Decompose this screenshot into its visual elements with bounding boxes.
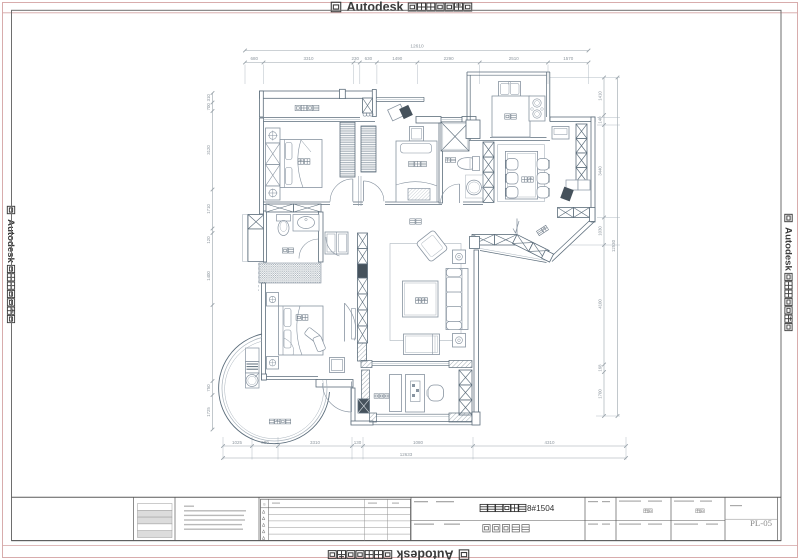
svg-text:4100: 4100 [598,299,603,309]
svg-text:12610: 12610 [410,44,424,50]
svg-text:1710: 1710 [206,204,211,214]
svg-text:3120: 3120 [206,145,211,155]
svg-text:2510: 2510 [509,56,520,61]
svg-text:140: 140 [598,116,603,124]
svg-text:700: 700 [206,103,211,111]
svg-text:130: 130 [354,440,362,445]
svg-text:Autodesk: Autodesk [347,0,404,14]
svg-text:168: 168 [598,364,603,372]
svg-text:12530: 12530 [611,239,616,252]
svg-text:750: 750 [206,384,211,392]
svg-text:4310: 4310 [544,440,555,445]
svg-text:3310: 3310 [303,56,314,61]
svg-text:Autodesk: Autodesk [5,219,16,263]
svg-text:8#1504: 8#1504 [527,504,555,513]
svg-text:680: 680 [250,56,258,61]
svg-text:PL-05: PL-05 [750,518,773,528]
svg-text:3440: 3440 [598,166,603,176]
svg-text:Autodesk: Autodesk [396,548,453,560]
svg-text:12633: 12633 [400,452,413,457]
svg-text:1700: 1700 [598,389,603,399]
svg-text:1025: 1025 [232,440,243,445]
svg-text:1080: 1080 [413,440,424,445]
svg-text:120: 120 [206,236,211,244]
svg-text:1725: 1725 [206,407,211,417]
svg-text:1490: 1490 [392,56,403,61]
svg-text:1400: 1400 [206,271,211,281]
svg-text:230: 230 [351,56,359,61]
svg-text:310: 310 [206,94,211,102]
svg-text:630: 630 [365,56,373,61]
svg-text:1030: 1030 [598,226,603,236]
svg-text:Autodesk: Autodesk [782,227,793,271]
svg-text:1570: 1570 [563,56,574,61]
svg-text:2290: 2290 [444,56,455,61]
svg-text:3310: 3310 [310,440,321,445]
svg-text:B: B [263,502,265,506]
svg-text:1410: 1410 [598,91,603,101]
